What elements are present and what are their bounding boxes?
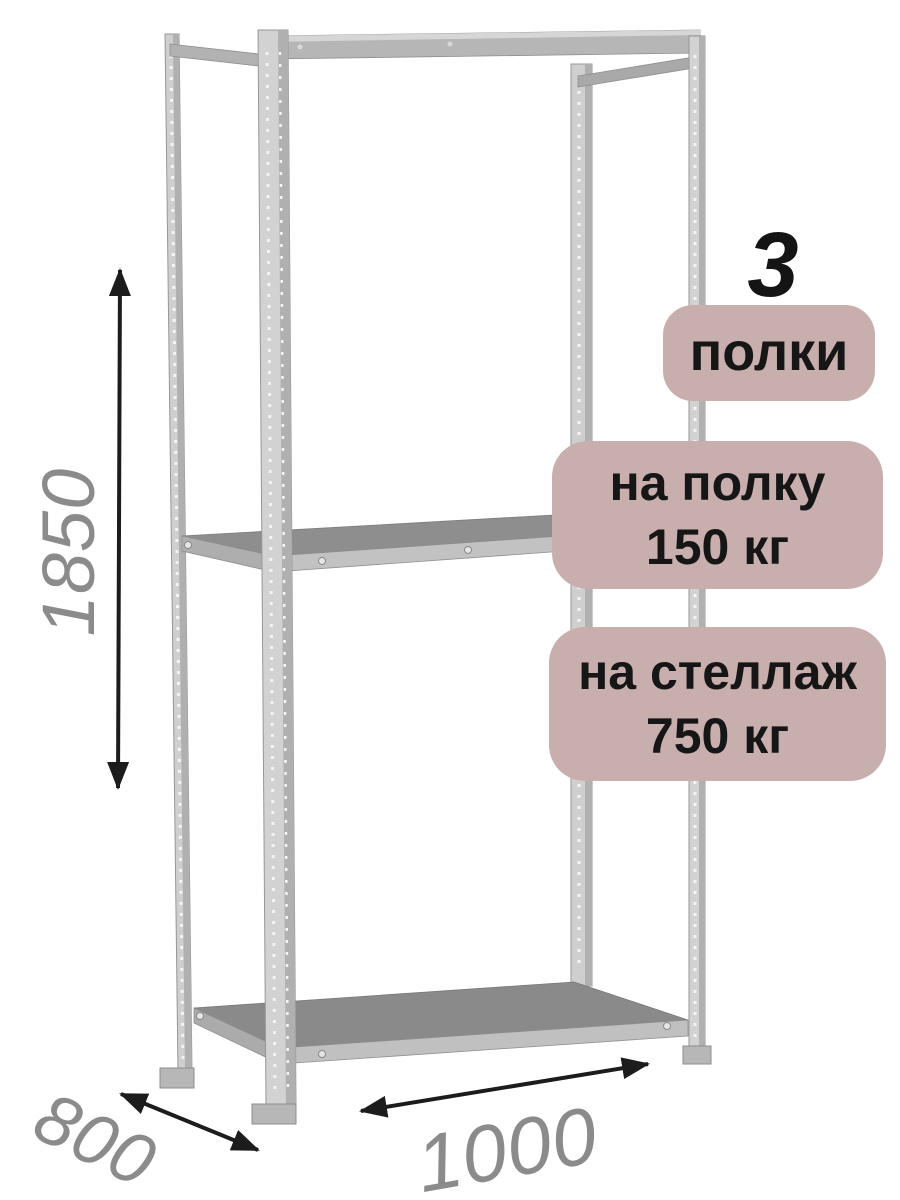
rack-top-shelf: [170, 30, 700, 87]
per-shelf-load-line1: на полку: [610, 451, 826, 515]
rack-post-front-left: [252, 30, 296, 1124]
shelf-count-badge-label: полки: [690, 318, 849, 387]
per-rack-load-line1: на стеллаж: [578, 640, 857, 704]
per-shelf-load-line2: 150 кг: [646, 515, 789, 579]
shelf-count-badge: полки: [663, 305, 875, 401]
shelf-count-value: 3: [747, 219, 798, 311]
rack-post-back-left: [160, 34, 194, 1088]
shelving-rack-illustration: [0, 0, 900, 1200]
per-rack-load-line2: 750 кг: [646, 704, 789, 768]
per-rack-load-badge: на стеллаж 750 кг: [549, 627, 886, 781]
per-shelf-load-badge: на полку 150 кг: [552, 441, 883, 589]
height-dimension-label: 1850: [32, 468, 106, 637]
product-image: 1850 800 1000 3 полки на полку 150 кг на…: [0, 0, 900, 1200]
height-dimension-arrow-icon: [118, 270, 120, 788]
